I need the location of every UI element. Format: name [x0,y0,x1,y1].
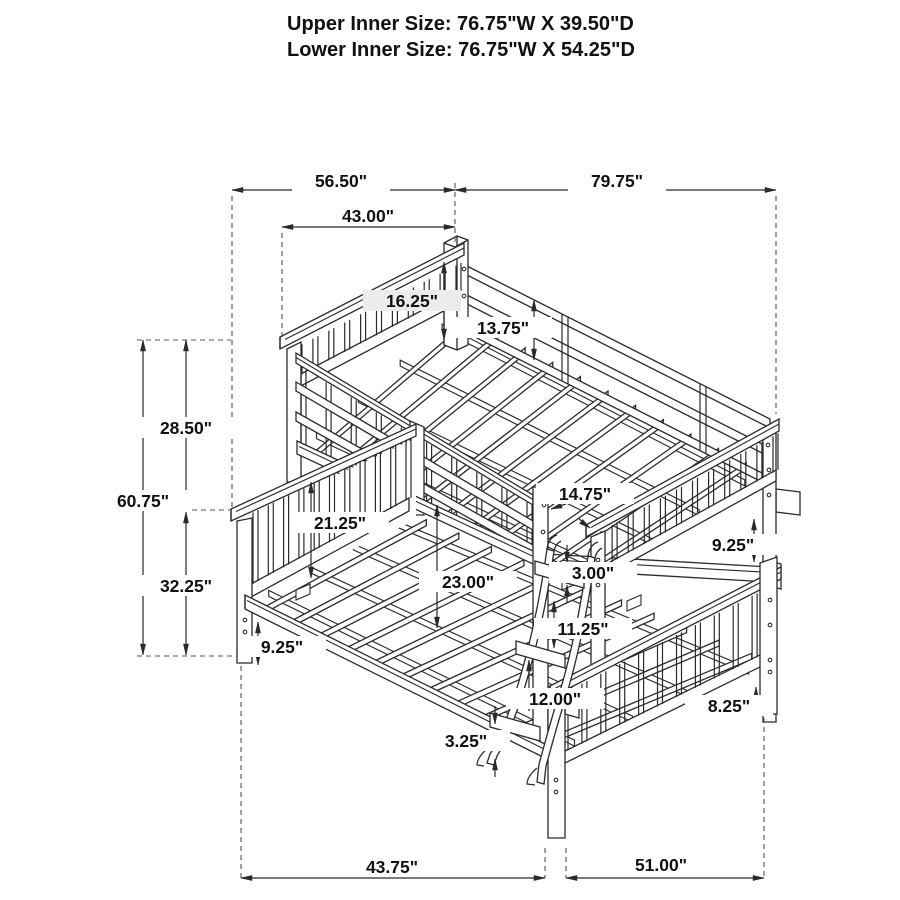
svg-text:28.50": 28.50" [160,418,212,438]
svg-text:79.75": 79.75" [591,171,643,191]
svg-text:3.00": 3.00" [572,563,614,583]
svg-text:12.00": 12.00" [529,689,581,709]
svg-text:8.25": 8.25" [708,696,750,716]
svg-text:16.25": 16.25" [386,291,438,311]
svg-text:56.50": 56.50" [315,171,367,191]
svg-text:9.25": 9.25" [712,535,754,555]
svg-text:60.75": 60.75" [117,491,169,511]
svg-text:23.00": 23.00" [442,572,494,592]
svg-text:32.25": 32.25" [160,576,212,596]
svg-text:14.75": 14.75" [559,484,611,504]
svg-text:21.25": 21.25" [314,513,366,533]
svg-text:13.75": 13.75" [477,318,529,338]
svg-text:43.75": 43.75" [366,857,418,877]
svg-text:11.25": 11.25" [557,619,608,639]
svg-text:51.00": 51.00" [635,855,687,875]
svg-text:3.25": 3.25" [445,731,487,751]
svg-text:9.25": 9.25" [261,637,303,657]
svg-text:43.00": 43.00" [342,206,394,226]
